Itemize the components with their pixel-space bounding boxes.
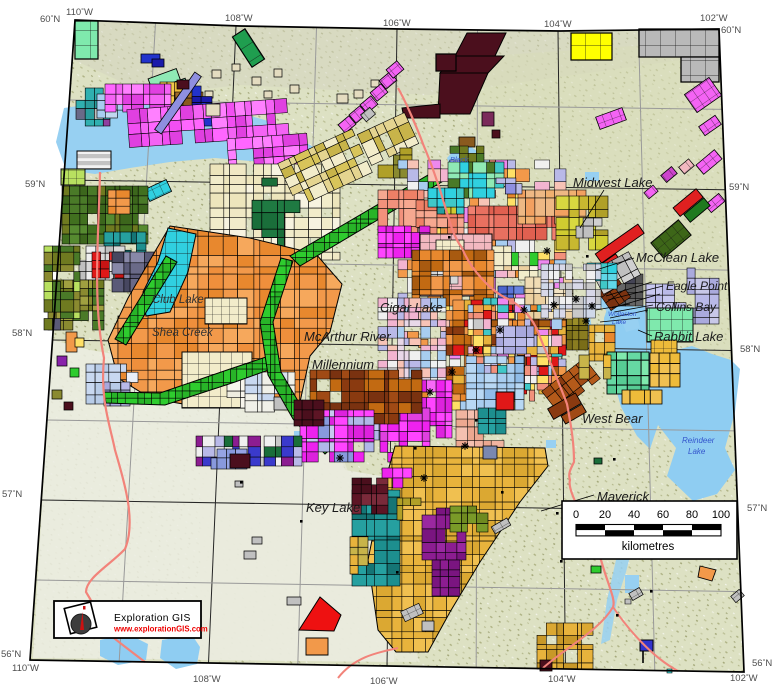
svg-text:104°W: 104°W [544,19,572,30]
svg-text:59°N: 59°N [25,179,45,190]
svg-text:kilometres: kilometres [622,541,675,553]
svg-text:108°W: 108°W [193,674,221,685]
svg-text:40: 40 [628,509,640,521]
svg-text:Eagle Point: Eagle Point [666,279,728,293]
svg-text:Rabbit Lake: Rabbit Lake [654,329,723,344]
svg-text:106°W: 106°W [383,18,411,29]
svg-text:Lake: Lake [688,447,706,456]
svg-text:56°N: 56°N [752,658,772,669]
svg-text:Cigar Lake: Cigar Lake [380,300,443,315]
svg-text:80: 80 [686,509,698,521]
svg-text:59°N: 59°N [729,182,749,193]
svg-text:Black: Black [450,155,470,164]
svg-text:West Bear: West Bear [582,411,643,426]
svg-text:106°W: 106°W [370,676,398,687]
svg-text:www.explorationGIS.com: www.explorationGIS.com [113,625,208,634]
svg-text:104°W: 104°W [548,674,576,685]
svg-text:Collins Bay: Collins Bay [656,300,717,314]
svg-text:20: 20 [599,509,611,521]
svg-text:110°W: 110°W [12,663,39,674]
svg-text:Lake: Lake [612,319,626,326]
svg-text:108°W: 108°W [225,13,253,24]
svg-text:0: 0 [573,509,579,521]
svg-text:McClean Lake: McClean Lake [636,250,719,265]
svg-text:57°N: 57°N [747,503,767,514]
svg-text:Key Lake: Key Lake [306,500,360,515]
svg-text:Shea Creek: Shea Creek [152,327,214,339]
svg-text:60°N: 60°N [721,25,741,36]
svg-text:Midwest Lake: Midwest Lake [573,175,652,190]
svg-text:Exploration GIS: Exploration GIS [114,613,191,624]
svg-text:58°N: 58°N [12,328,32,339]
svg-text:57°N: 57°N [2,489,22,500]
svg-text:Reindeer: Reindeer [682,436,715,445]
svg-text:58°N: 58°N [740,344,760,355]
svg-text:102°W: 102°W [700,13,728,24]
svg-text:110°W: 110°W [66,7,93,18]
svg-text:60°N: 60°N [40,14,60,25]
svg-text:56°N: 56°N [1,649,21,660]
svg-text:102°W: 102°W [730,673,758,684]
svg-text:Millennium: Millennium [312,357,374,372]
svg-text:Club Lake: Club Lake [152,294,204,306]
svg-text:Wollaston: Wollaston [608,311,637,318]
svg-text:100: 100 [712,509,730,521]
svg-text:McArthur River: McArthur River [304,329,391,344]
svg-text:60: 60 [657,509,669,521]
